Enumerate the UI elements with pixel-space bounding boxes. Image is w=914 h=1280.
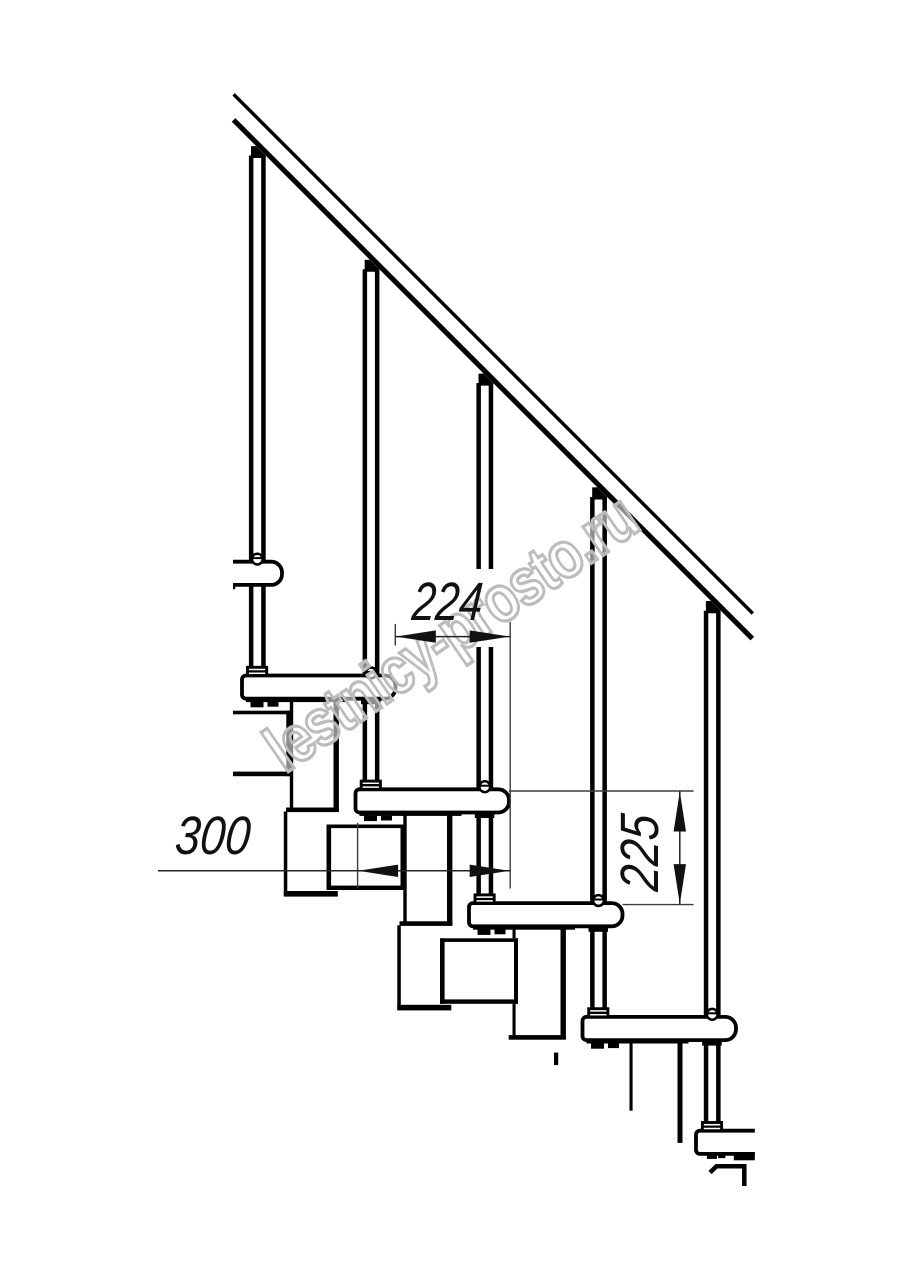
- svg-text:224: 224: [409, 572, 485, 632]
- svg-text:300: 300: [173, 805, 253, 866]
- svg-text:225: 225: [610, 811, 670, 894]
